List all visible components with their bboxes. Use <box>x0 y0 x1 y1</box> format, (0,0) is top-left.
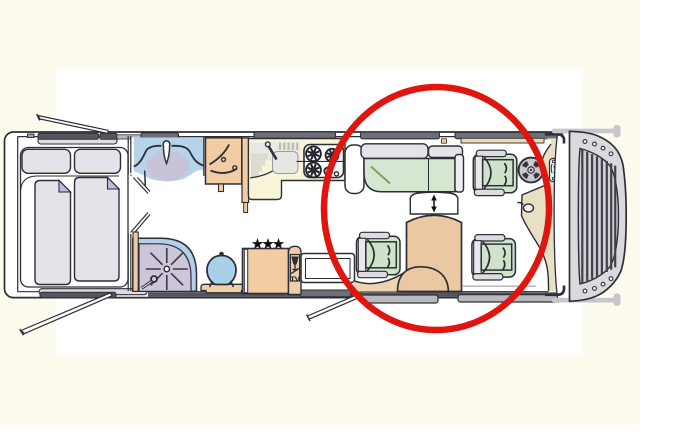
svg-text:TV: TV <box>290 275 300 284</box>
